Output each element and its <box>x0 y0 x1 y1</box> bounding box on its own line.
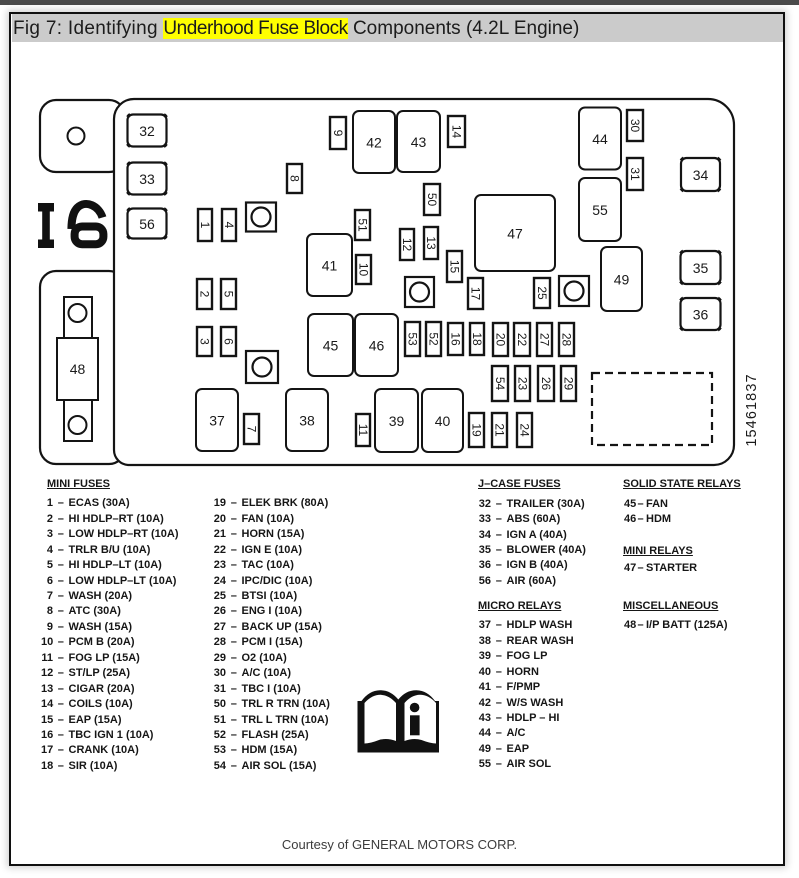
svg-text:27: 27 <box>538 333 552 347</box>
svg-text:20: 20 <box>494 333 508 347</box>
svg-text:19: 19 <box>470 423 484 437</box>
svg-text:11: 11 <box>356 424 370 437</box>
svg-text:2: 2 <box>198 291 212 298</box>
svg-text:16: 16 <box>449 332 463 346</box>
svg-text:56: 56 <box>139 216 155 232</box>
svg-text:48: 48 <box>70 361 86 377</box>
svg-text:4: 4 <box>222 222 236 229</box>
svg-text:50: 50 <box>425 193 439 207</box>
svg-text:41: 41 <box>322 258 338 274</box>
svg-text:33: 33 <box>139 171 155 187</box>
svg-text:46: 46 <box>369 338 385 354</box>
svg-text:55: 55 <box>592 202 608 218</box>
svg-text:21: 21 <box>493 423 507 437</box>
svg-text:22: 22 <box>515 333 529 347</box>
svg-text:37: 37 <box>209 413 225 429</box>
svg-text:15: 15 <box>448 260 462 274</box>
svg-text:47: 47 <box>507 226 523 242</box>
svg-text:31: 31 <box>628 167 642 181</box>
svg-text:15461837: 15461837 <box>744 373 760 446</box>
svg-text:36: 36 <box>693 307 709 323</box>
svg-text:10: 10 <box>357 263 371 277</box>
svg-text:52: 52 <box>427 332 441 346</box>
svg-text:39: 39 <box>389 413 405 429</box>
svg-text:3: 3 <box>198 338 212 345</box>
svg-text:40: 40 <box>435 413 451 429</box>
svg-text:13: 13 <box>424 236 438 250</box>
svg-text:6: 6 <box>222 338 236 345</box>
svg-text:45: 45 <box>323 338 339 354</box>
svg-text:25: 25 <box>535 286 549 300</box>
svg-text:1: 1 <box>198 222 212 229</box>
svg-text:24: 24 <box>518 423 532 437</box>
svg-text:54: 54 <box>493 377 507 391</box>
svg-text:9: 9 <box>331 130 345 137</box>
svg-text:29: 29 <box>562 377 576 391</box>
svg-text:23: 23 <box>516 377 530 391</box>
svg-text:38: 38 <box>299 413 315 429</box>
svg-text:43: 43 <box>411 134 427 150</box>
svg-text:51: 51 <box>356 218 370 232</box>
svg-text:44: 44 <box>592 131 608 147</box>
svg-text:8: 8 <box>288 175 302 182</box>
svg-text:30: 30 <box>628 119 642 133</box>
svg-text:34: 34 <box>693 167 709 183</box>
svg-text:18: 18 <box>470 332 484 346</box>
svg-text:26: 26 <box>539 377 553 391</box>
svg-text:17: 17 <box>469 287 483 301</box>
svg-text:49: 49 <box>614 272 630 288</box>
svg-text:5: 5 <box>222 291 236 298</box>
svg-text:12: 12 <box>400 238 414 252</box>
svg-text:53: 53 <box>406 332 420 346</box>
svg-text:7: 7 <box>245 426 259 433</box>
svg-text:28: 28 <box>560 333 574 347</box>
svg-text:35: 35 <box>693 260 709 276</box>
svg-text:42: 42 <box>366 135 382 151</box>
svg-text:14: 14 <box>450 125 464 139</box>
svg-text:32: 32 <box>139 123 155 139</box>
